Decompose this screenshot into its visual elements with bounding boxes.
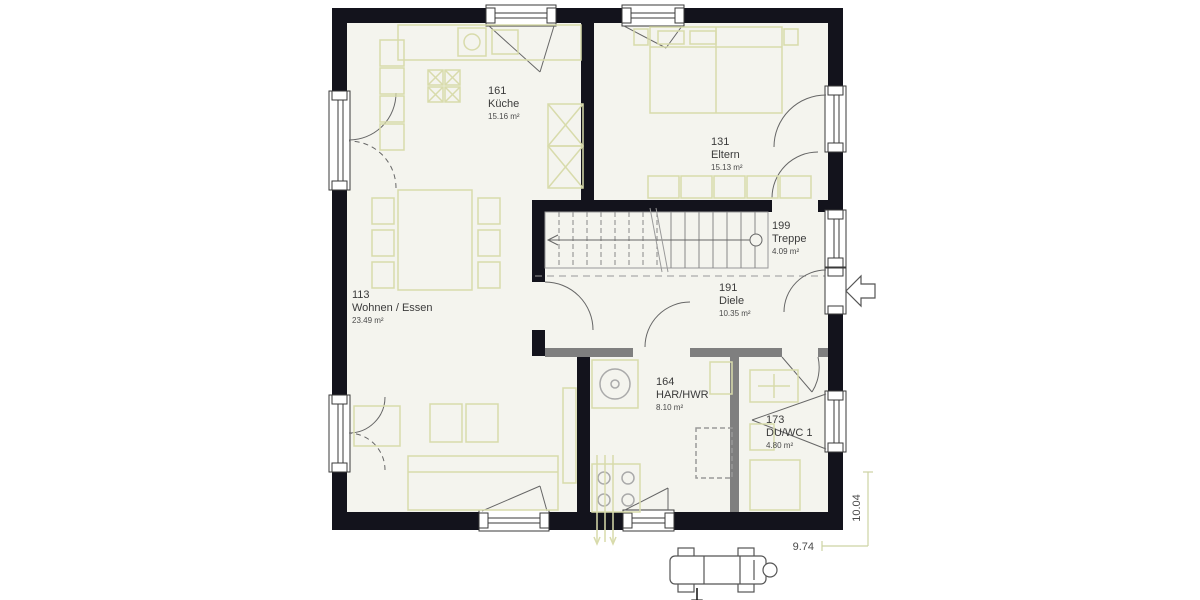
- room-number: 191: [719, 282, 751, 295]
- room-number: 131: [711, 136, 743, 149]
- room-area: 4.09 m²: [772, 247, 806, 257]
- room-label-wohnen-essen: 113 Wohnen / Essen 23.49 m²: [352, 289, 433, 326]
- room-name: Treppe: [772, 233, 806, 246]
- car-icon: [670, 548, 777, 592]
- room-name: Wohnen / Essen: [352, 302, 433, 315]
- floor-plan-page: 10.04 9.74 161 Küche 15.16 m² 131 Eltern…: [0, 0, 1200, 600]
- room-area: 4.80 m²: [766, 441, 812, 451]
- entrance-arrow-icon: [846, 276, 875, 306]
- room-number: 113: [352, 289, 433, 302]
- room-area: 23.49 m²: [352, 316, 433, 326]
- room-label-kueche: 161 Küche 15.16 m²: [488, 85, 520, 122]
- floor-plan-drawing: 10.04 9.74: [0, 0, 1200, 600]
- room-name: Diele: [719, 295, 751, 308]
- room-name: HAR/HWR: [656, 389, 709, 402]
- room-label-har-hwr: 164 HAR/HWR 8.10 m²: [656, 376, 709, 413]
- room-name: Küche: [488, 98, 520, 111]
- dimension-height-label: 10.04: [851, 494, 863, 522]
- room-label-treppe: 199 Treppe 4.09 m²: [772, 220, 806, 257]
- room-label-eltern: 131 Eltern 15.13 m²: [711, 136, 743, 173]
- room-label-diele: 191 Diele 10.35 m²: [719, 282, 751, 319]
- dimension-width-label: 9.74: [793, 541, 814, 553]
- room-number: 161: [488, 85, 520, 98]
- room-area: 15.13 m²: [711, 163, 743, 173]
- room-name: Eltern: [711, 149, 743, 162]
- room-number: 199: [772, 220, 806, 233]
- room-label-du-wc: 173 DU/WC 1 4.80 m²: [766, 414, 812, 451]
- room-number: 164: [656, 376, 709, 389]
- room-name: DU/WC 1: [766, 427, 812, 440]
- room-area: 15.16 m²: [488, 112, 520, 122]
- room-area: 10.35 m²: [719, 309, 751, 319]
- room-number: 173: [766, 414, 812, 427]
- room-area: 8.10 m²: [656, 403, 709, 413]
- stair-window-icon: [825, 210, 846, 267]
